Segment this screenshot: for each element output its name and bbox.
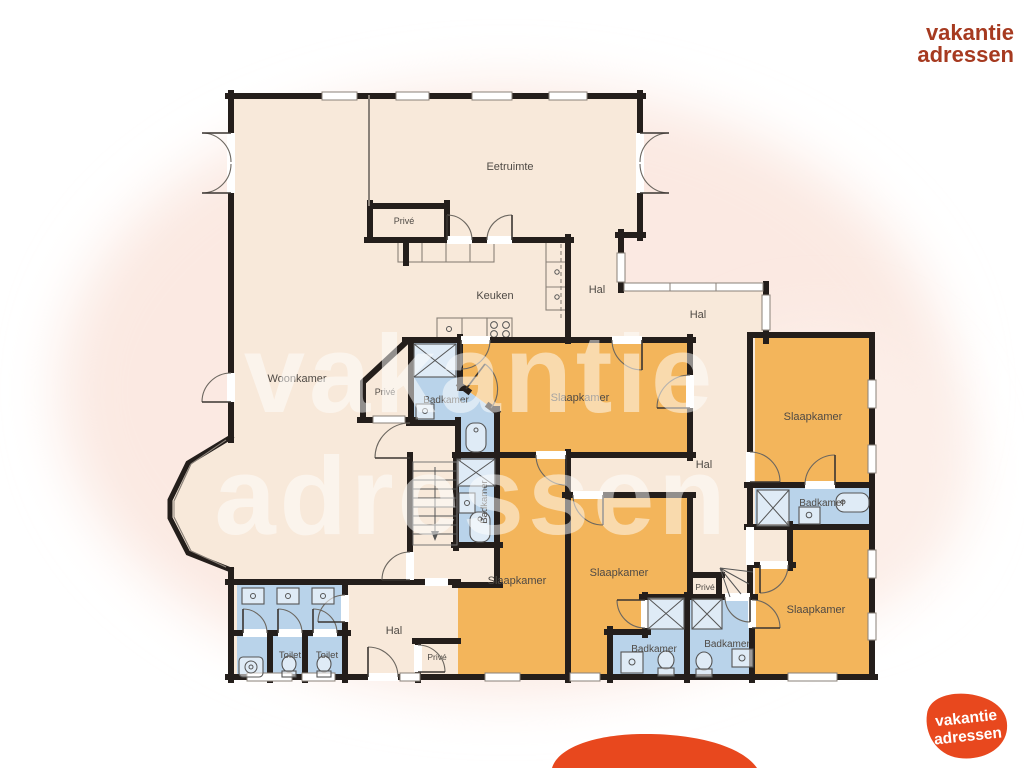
sink-icon xyxy=(312,588,334,604)
toilet-icon xyxy=(696,652,712,677)
floorplan-drawing: Eetruimte Privé Keuken Hal Hal Woonkamer… xyxy=(0,0,1024,768)
shower-tray-icon xyxy=(239,657,263,677)
label-hal-entry: Hal xyxy=(386,625,403,637)
label-slaapkamer-mid: Slaapkamer xyxy=(590,567,649,579)
shower-icon xyxy=(757,490,789,526)
label-slaapkamer-right-bottom: Slaapkamer xyxy=(787,604,846,616)
watermark-line2: adressen xyxy=(214,435,729,558)
label-slaapkamer-right-top: Slaapkamer xyxy=(784,411,843,423)
bottom-blob xyxy=(552,734,757,768)
label-badkamer-mid-left: Badkamer xyxy=(631,644,677,655)
label-slaapkamer-left: Slaapkamer xyxy=(488,575,547,587)
label-keuken: Keuken xyxy=(476,290,513,302)
label-prive-entry: Privé xyxy=(427,652,447,662)
label-toilet-2: Toilet xyxy=(316,650,339,661)
shower-icon xyxy=(648,598,684,629)
sink-icon xyxy=(242,588,264,604)
label-toilet-1: Toilet xyxy=(279,650,302,661)
sink-icon xyxy=(621,652,643,673)
sink-icon xyxy=(277,588,299,604)
label-eetruimte: Eetruimte xyxy=(486,161,533,173)
label-prive-top: Privé xyxy=(394,216,415,226)
header-logo: vakantie adressen xyxy=(917,20,1014,67)
header-logo-line2: adressen xyxy=(917,42,1014,67)
sink-icon xyxy=(799,507,820,524)
sink-icon xyxy=(732,649,753,667)
footer-logo: vakantie adressen xyxy=(927,694,1008,759)
label-badkamer-mid-right: Badkamer xyxy=(704,639,750,650)
label-badkamer-right: Badkamer xyxy=(799,498,845,509)
floorplan-page: Eetruimte Privé Keuken Hal Hal Woonkamer… xyxy=(0,0,1024,768)
shower-icon xyxy=(692,599,722,629)
label-prive-corridor: Privé xyxy=(695,582,715,592)
watermark-line1: vakantie xyxy=(244,313,716,436)
label-hal-kitchen: Hal xyxy=(589,284,606,296)
watermark: vakantie adressen xyxy=(214,313,729,558)
